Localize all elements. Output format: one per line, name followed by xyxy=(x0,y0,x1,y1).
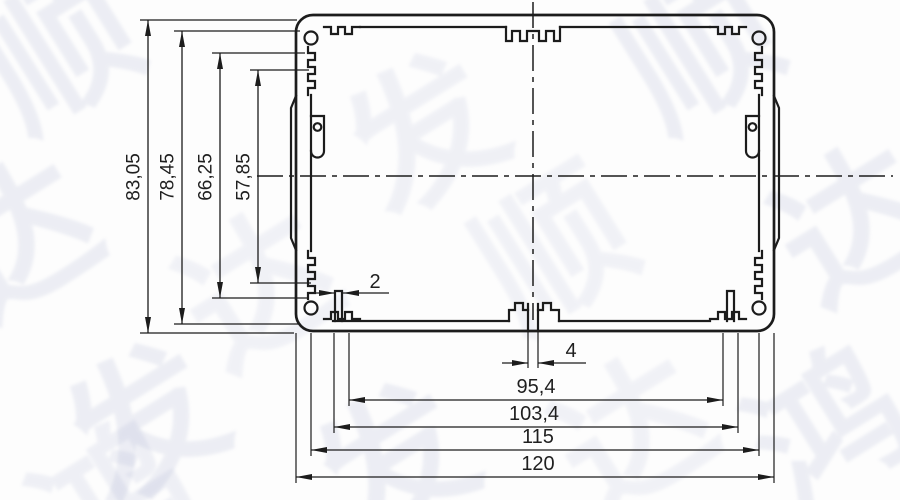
dim-label: 66,25 xyxy=(196,153,217,201)
right-wall-hook-hole xyxy=(749,123,757,131)
dim-label: 103,4 xyxy=(509,403,559,425)
corner-boss-top-left xyxy=(305,27,361,95)
drawing-canvas: 顺 达 发 达 发 顺 顺 达 鸿 发 达 鸿 xyxy=(0,0,900,500)
dim-label: 78,45 xyxy=(158,153,179,201)
dim-label: 4 xyxy=(565,340,576,362)
bottom-screw-port xyxy=(509,303,559,321)
dimension-95-4: 95,4 xyxy=(349,333,723,406)
corner-boss-top-right xyxy=(710,27,766,95)
dim-label: 57,85 xyxy=(234,153,255,201)
dim-label: 115 xyxy=(522,426,554,448)
dimension-rib-2: 2 xyxy=(311,271,389,293)
corner-boss-bottom-right xyxy=(710,251,766,319)
dimension-slot-4: 4 xyxy=(502,331,586,368)
dim-label: 95,4 xyxy=(517,376,556,398)
right-bottom-rib xyxy=(727,291,734,321)
technical-drawing: 83,05 78,45 66,25 57,85 95,4 103,4 xyxy=(0,0,900,500)
dim-label: 120 xyxy=(521,453,554,475)
dimension-78-45: 78,45 xyxy=(158,31,301,324)
profile-outline xyxy=(291,15,779,331)
dim-label: 2 xyxy=(369,271,380,293)
dim-label: 83,05 xyxy=(124,153,145,201)
left-wall-hook-hole xyxy=(314,123,322,131)
inner-side-walls xyxy=(311,95,759,251)
corner-boss-bottom-left xyxy=(305,251,361,319)
